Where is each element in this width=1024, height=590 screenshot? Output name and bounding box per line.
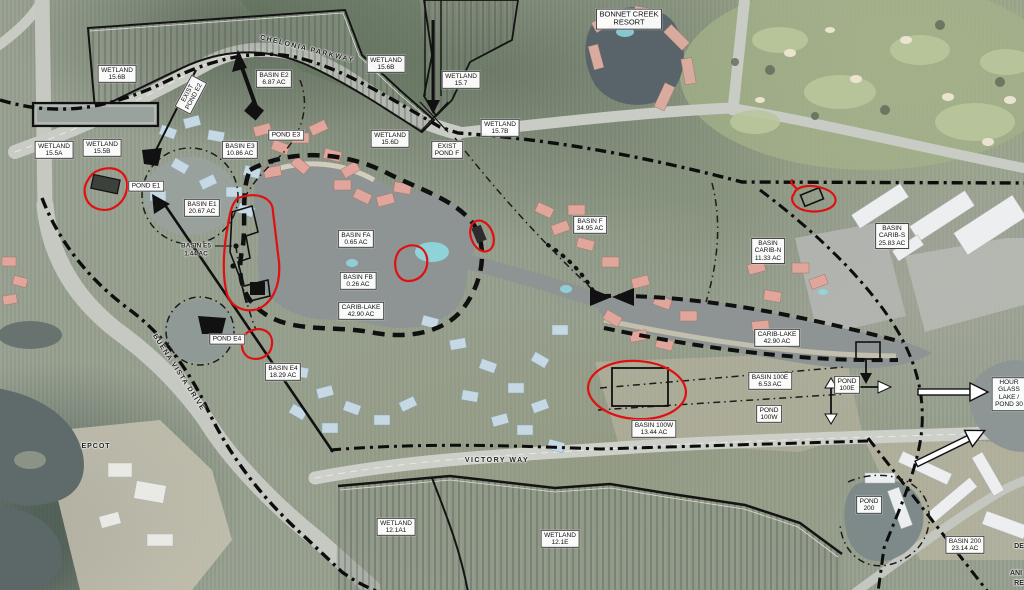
map-label-basin-e5: BASIN E51.44 AC <box>181 242 211 257</box>
map-label-exist-pond-f: EXISTPOND F <box>431 141 463 159</box>
map-label-pond-e1: POND E1 <box>128 181 164 192</box>
map-label-basin-100e: BASIN 100E6.53 AC <box>748 372 792 390</box>
map-label-wetland-15-6b-west: WETLAND15.6B <box>98 65 137 83</box>
map-label-wetland-12-1e: WETLAND12.1E <box>541 530 580 548</box>
map-label-basin-fb: BASIN FB0.26 AC <box>340 272 377 290</box>
map-label-basin-e1: BASIN E120.67 AC <box>184 199 220 217</box>
map-label-chelonia-parkway: CHELONIA PARKWAY <box>259 34 355 65</box>
map-label-edge-text-ani: ANI <box>1010 570 1022 578</box>
map-label-basin-e3: BASIN E310.86 AC <box>222 141 258 159</box>
map-label-basin-200: BASIN 20023.14 AC <box>945 536 984 554</box>
map-label-victory-way: VICTORY WAY <box>465 457 529 465</box>
map-label-carib-lake-east: CARIB-LAKE42.90 AC <box>754 329 800 347</box>
map-label-edge-text-re: RE <box>1014 580 1024 588</box>
map-label-wetland-12-1a1: WETLAND12.1A1 <box>377 518 416 536</box>
map-label-buena-vista-drive: BUENA VISTA DRIVE <box>150 333 206 413</box>
map-label-basin-f: BASIN F34.95 AC <box>573 216 607 234</box>
map-label-basin-e4: BASIN E418.29 AC <box>265 363 301 381</box>
map-label-wetland-15-5b: WETLAND15.5B <box>83 139 122 157</box>
map-label-basin-100w: BASIN 100W13.44 AC <box>631 420 676 438</box>
map-labels-layer: WETLAND15.6BWETLAND15.5AWETLAND15.5BEXIS… <box>0 0 1024 590</box>
map-label-basin-carib-n: BASINCARIB-N11.33 AC <box>751 238 785 264</box>
map-label-epcot: EPCOT <box>81 443 110 451</box>
map-label-pond-100w: POND100W <box>756 405 782 423</box>
map-label-wetland-15-5a: WETLAND15.5A <box>35 141 74 159</box>
map-label-carib-lake-west: CARIB-LAKE42.90 AC <box>338 302 384 320</box>
map-label-wetland-15-6d: WETLAND15.6D <box>371 130 410 148</box>
map-label-pond-e3: POND E3 <box>268 130 304 141</box>
map-label-basin-carib-s: BASINCARIB-S25.83 AC <box>875 223 909 249</box>
map-label-wetland-15-7b: WETLAND15.7B <box>481 119 520 137</box>
map-label-basin-e2: BASIN E26.87 AC <box>256 70 292 88</box>
map-label-pond-100e: POND100E <box>834 376 860 394</box>
map-label-hour-glass-lake: HOURGLASSLAKE /POND 30 <box>992 377 1024 411</box>
map-label-bonnet-creek-resort: BONNET CREEKRESORT <box>596 9 662 30</box>
map-label-edge-text-de: DE <box>1014 543 1024 551</box>
map-label-wetland-15-7: WETLAND15.7 <box>442 71 481 89</box>
map-label-wetland-15-6b-north: WETLAND15.6B <box>367 55 406 73</box>
site-plan-canvas: WETLAND15.6BWETLAND15.5AWETLAND15.5BEXIS… <box>0 0 1024 590</box>
map-label-exist-pond-e2: EXISTPOND E2 <box>175 75 208 115</box>
map-label-basin-fa: BASIN FA0.65 AC <box>338 230 374 248</box>
map-label-pond-e4: POND E4 <box>209 334 245 345</box>
map-label-pond-200: POND200 <box>856 496 882 514</box>
